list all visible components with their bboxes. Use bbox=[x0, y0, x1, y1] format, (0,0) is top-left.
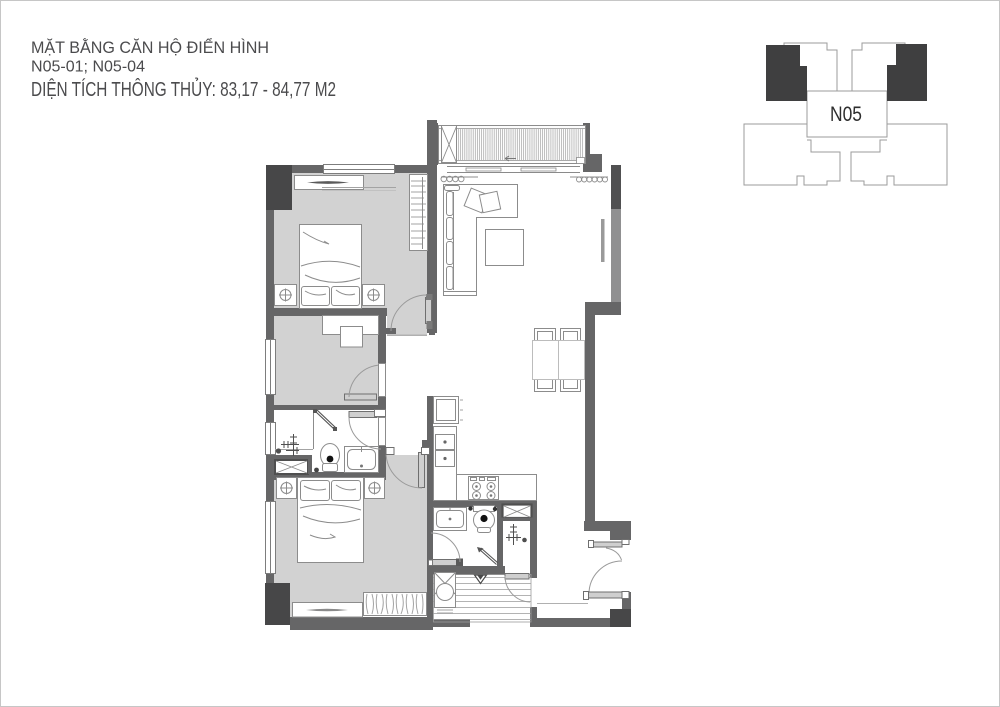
svg-text:N05: N05 bbox=[830, 102, 862, 126]
svg-text:N05-01; N05-04: N05-01; N05-04 bbox=[31, 59, 145, 76]
svg-text:DIỆN TÍCH THÔNG THỦY: 83,17 -: DIỆN TÍCH THÔNG THỦY: 83,17 - 84,77 M2 bbox=[31, 77, 336, 101]
svg-text:MẶT BẰNG CĂN HỘ ĐIỂN HÌNH: MẶT BẰNG CĂN HỘ ĐIỂN HÌNH bbox=[31, 38, 269, 57]
